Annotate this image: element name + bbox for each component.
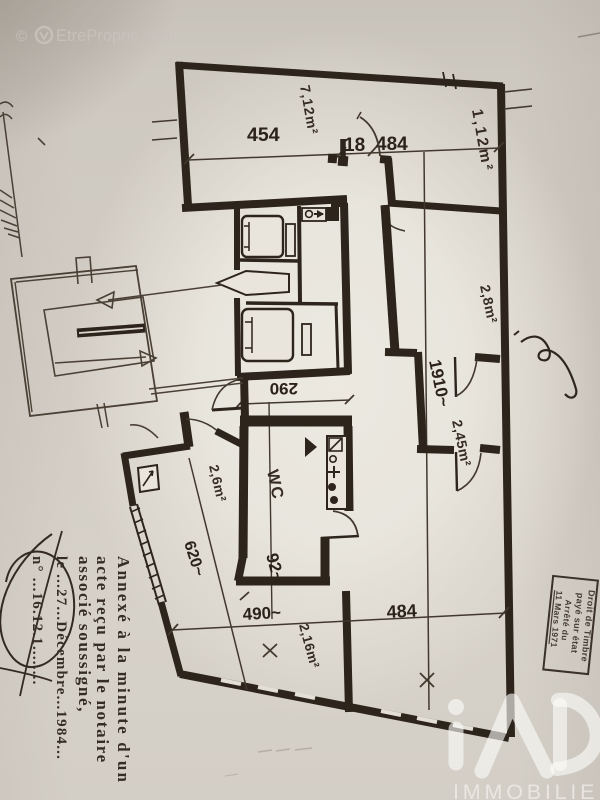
- svg-text:le ...27...Décembre...1984...: le ...27...Décembre...1984...: [53, 556, 69, 760]
- svg-text:620~: 620~: [180, 539, 207, 579]
- svg-text:EtreProprio.com: EtreProprio.com: [56, 27, 175, 45]
- svg-text:©: ©: [16, 28, 27, 45]
- svg-text:2,16m²: 2,16m²: [296, 622, 322, 670]
- svg-text:associé soussigné,: associé soussigné,: [75, 556, 94, 713]
- svg-text:490~: 490~: [242, 603, 281, 624]
- svg-text:n° ...16.12.1........: n° ...16.12.1........: [29, 556, 45, 686]
- svg-text:18: 18: [344, 135, 365, 156]
- svg-text:290: 290: [270, 379, 298, 398]
- svg-text:2,6m²: 2,6m²: [206, 463, 229, 503]
- svg-text:2,45m²: 2,45m²: [449, 418, 474, 468]
- svg-text:484: 484: [386, 600, 417, 622]
- svg-text:484: 484: [376, 134, 408, 155]
- svg-text:IMMOBILIER: IMMOBILIER: [453, 780, 600, 800]
- svg-text:WC: WC: [263, 468, 287, 502]
- svg-text:454: 454: [247, 124, 280, 146]
- svg-text:Annexé à la minute d'un: Annexé à la minute d'un: [114, 556, 133, 784]
- svg-text:acte reçu par le notaire: acte reçu par le notaire: [93, 556, 112, 764]
- svg-text:1,12m²: 1,12m²: [468, 108, 496, 174]
- svg-text:2,8m²: 2,8m²: [477, 283, 501, 325]
- svg-text:7,12m²: 7,12m²: [297, 84, 322, 136]
- svg-text:1910~: 1910~: [425, 358, 454, 409]
